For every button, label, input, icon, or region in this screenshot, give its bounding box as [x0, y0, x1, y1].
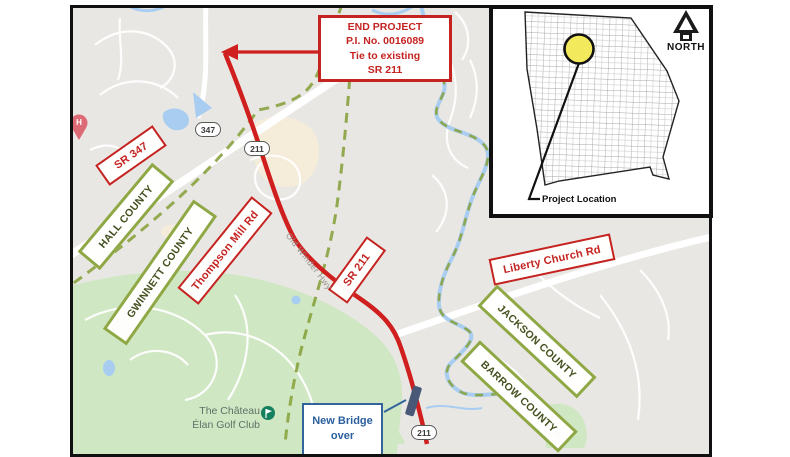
north-arrow-icon: [673, 10, 699, 41]
inset-locator-map: NORTH Project Location: [489, 5, 713, 218]
golf-club-label-line-1: The Château: [168, 404, 260, 418]
new-bridge-callout: New Bridge over: [302, 403, 383, 457]
new-bridge-line-2: over: [331, 429, 354, 444]
end-project-line-1: END PROJECT: [348, 20, 423, 35]
route-shield-211-south: 211: [411, 425, 437, 440]
georgia-county-map: [493, 9, 709, 214]
golf-flag-icon: [261, 406, 275, 420]
end-project-callout: END PROJECT P.I. No. 0016089 Tie to exis…: [318, 15, 452, 82]
project-location-map-page: H END PROJECT P.I. No. 0016089 Tie to ex…: [0, 0, 790, 440]
project-location-marker: [565, 35, 594, 64]
golf-club-label: The Château Élan Golf Club: [168, 404, 260, 432]
end-project-line-4: SR 211: [368, 63, 402, 78]
route-shield-211-north: 211: [244, 141, 270, 156]
project-location-label: Project Location: [542, 194, 616, 205]
georgia-state-outline: [525, 12, 679, 185]
golf-club-label-line-2: Élan Golf Club: [168, 418, 260, 432]
end-project-line-2: P.I. No. 0016089: [346, 34, 424, 49]
new-bridge-line-1: New Bridge: [312, 414, 373, 429]
north-label: NORTH: [663, 42, 709, 53]
end-project-line-3: Tie to existing: [350, 49, 420, 64]
route-shield-347: 347: [195, 122, 221, 137]
hospital-pin-label: H: [71, 118, 87, 127]
